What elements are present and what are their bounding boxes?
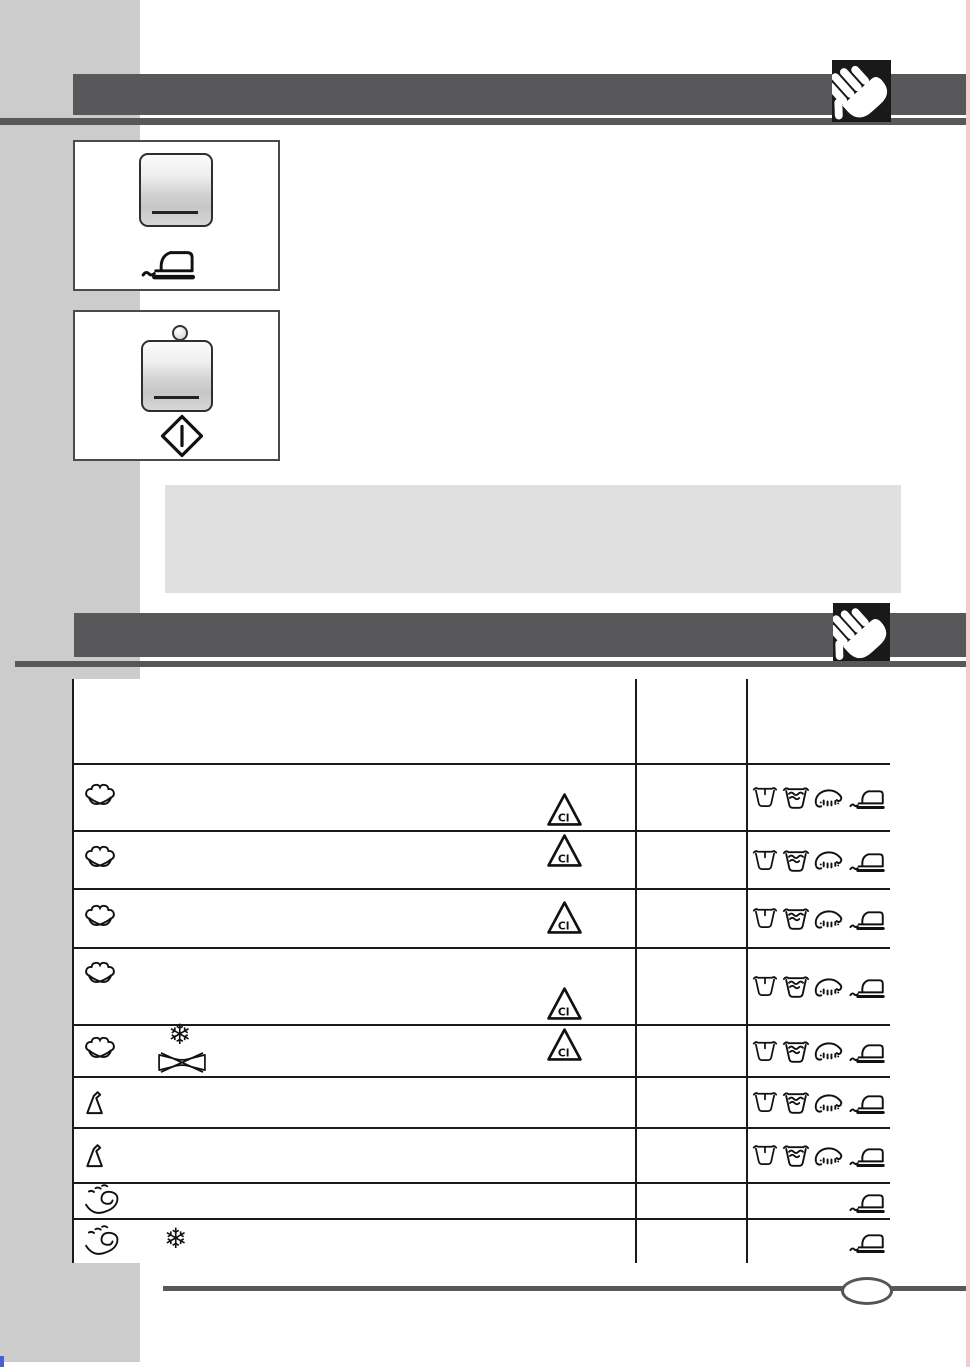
rinse-tub-icon bbox=[782, 1038, 810, 1063]
hand-icon bbox=[833, 603, 890, 662]
spin-dry-icon bbox=[814, 974, 845, 998]
delicates-cold-program: ❄ bbox=[72, 1218, 890, 1263]
cotton-program-4: Cl bbox=[72, 947, 890, 1024]
wash-tub-icon bbox=[752, 784, 778, 809]
start-diamond-icon bbox=[159, 413, 205, 459]
spin-dry-icon bbox=[814, 785, 845, 809]
rinse-tub-icon bbox=[782, 847, 810, 872]
note-box bbox=[165, 485, 901, 593]
wash-tub-icon bbox=[752, 973, 778, 998]
care-symbols-cell bbox=[750, 830, 888, 888]
care-symbols-cell bbox=[750, 1127, 888, 1182]
header-rule-2 bbox=[15, 661, 970, 667]
iron-icon bbox=[849, 846, 886, 873]
iron-icon bbox=[849, 1088, 886, 1115]
wash-tub-icon bbox=[752, 1142, 778, 1167]
bleach-triangle-icon: Cl bbox=[546, 985, 583, 1022]
synthetics-program-2 bbox=[72, 1127, 890, 1182]
delicates-icon bbox=[83, 1224, 125, 1258]
push-button bbox=[139, 153, 213, 227]
iron-icon bbox=[849, 1187, 886, 1214]
delicates-icon bbox=[83, 1183, 125, 1217]
spin-dry-icon bbox=[814, 1090, 845, 1114]
svg-text:Cl: Cl bbox=[558, 1005, 570, 1018]
rinse-tub-icon bbox=[782, 1142, 810, 1167]
led-indicator bbox=[172, 325, 188, 341]
wash-tub-icon bbox=[752, 905, 778, 930]
header-rule-1 bbox=[0, 118, 970, 125]
cotton-program-2: Cl bbox=[72, 830, 890, 888]
cotton-icon bbox=[83, 903, 117, 933]
care-symbols-cell bbox=[750, 763, 888, 830]
cotton-icon bbox=[83, 782, 117, 812]
bleach-triangle-icon: Cl bbox=[546, 832, 583, 869]
care-symbols-cell bbox=[750, 888, 888, 947]
snowflake-icon: ❄ bbox=[168, 1021, 191, 1049]
cotton-icon bbox=[83, 844, 117, 874]
care-symbols-cell bbox=[750, 1076, 888, 1127]
cotton-icon bbox=[83, 1035, 117, 1065]
care-symbols-cell bbox=[750, 947, 888, 1024]
synthetics-icon bbox=[83, 1140, 107, 1170]
spin-dry-icon bbox=[814, 906, 845, 930]
bleach-triangle-icon: Cl bbox=[546, 791, 583, 828]
rinse-tub-icon bbox=[782, 784, 810, 809]
cotton-icon bbox=[83, 960, 117, 990]
hand-icon bbox=[832, 60, 891, 122]
iron-icon bbox=[849, 904, 886, 931]
iron-icon bbox=[849, 1141, 886, 1168]
push-button bbox=[141, 340, 213, 412]
wash-tub-icon bbox=[752, 847, 778, 872]
iron-icon bbox=[849, 1227, 886, 1254]
rinse-tub-icon bbox=[782, 905, 810, 930]
care-symbols-cell bbox=[750, 1024, 888, 1076]
program-table: ClClClCl❄Cl❄ bbox=[72, 679, 890, 1263]
iron-icon bbox=[849, 972, 886, 999]
iron-icon bbox=[849, 783, 886, 810]
delicates-program-1 bbox=[72, 1182, 890, 1218]
synthetics-program-1 bbox=[72, 1076, 890, 1127]
bleach-triangle-icon: Cl bbox=[546, 1026, 583, 1063]
wash-tub-icon bbox=[752, 1038, 778, 1063]
care-symbols-cell bbox=[750, 1182, 888, 1218]
cotton-program-1: Cl bbox=[72, 763, 890, 830]
svg-text:Cl: Cl bbox=[558, 919, 570, 932]
spin-dry-icon bbox=[814, 1143, 845, 1167]
no-wring-icon bbox=[156, 1052, 208, 1073]
spin-dry-icon bbox=[814, 847, 845, 871]
svg-text:Cl: Cl bbox=[558, 811, 570, 824]
iron-icon bbox=[849, 1037, 886, 1064]
button-mark bbox=[152, 211, 198, 214]
button-mark bbox=[154, 396, 199, 399]
synthetics-icon bbox=[83, 1087, 107, 1117]
rinse-tub-icon bbox=[782, 973, 810, 998]
rinse-tub-icon bbox=[782, 1089, 810, 1114]
bleach-triangle-icon: Cl bbox=[546, 899, 583, 936]
care-symbols-cell bbox=[750, 1218, 888, 1263]
start-button-panel bbox=[73, 310, 280, 461]
snowflake-icon: ❄ bbox=[164, 1225, 187, 1253]
manual-page: ClClClCl❄Cl❄ bbox=[0, 0, 970, 1367]
scan-artifact-right bbox=[966, 0, 970, 1367]
svg-text:Cl: Cl bbox=[558, 852, 570, 865]
page-number-badge bbox=[841, 1277, 893, 1305]
spin-dry-icon bbox=[814, 1038, 845, 1062]
svg-text:Cl: Cl bbox=[558, 1046, 570, 1059]
cotton-cold-program: ❄Cl bbox=[72, 1024, 890, 1076]
iron-icon bbox=[121, 240, 217, 282]
easy-iron-button-panel bbox=[73, 140, 280, 291]
cotton-program-3: Cl bbox=[72, 888, 890, 947]
wash-tub-icon bbox=[752, 1089, 778, 1114]
scan-artifact-bottom-left bbox=[0, 1356, 4, 1367]
